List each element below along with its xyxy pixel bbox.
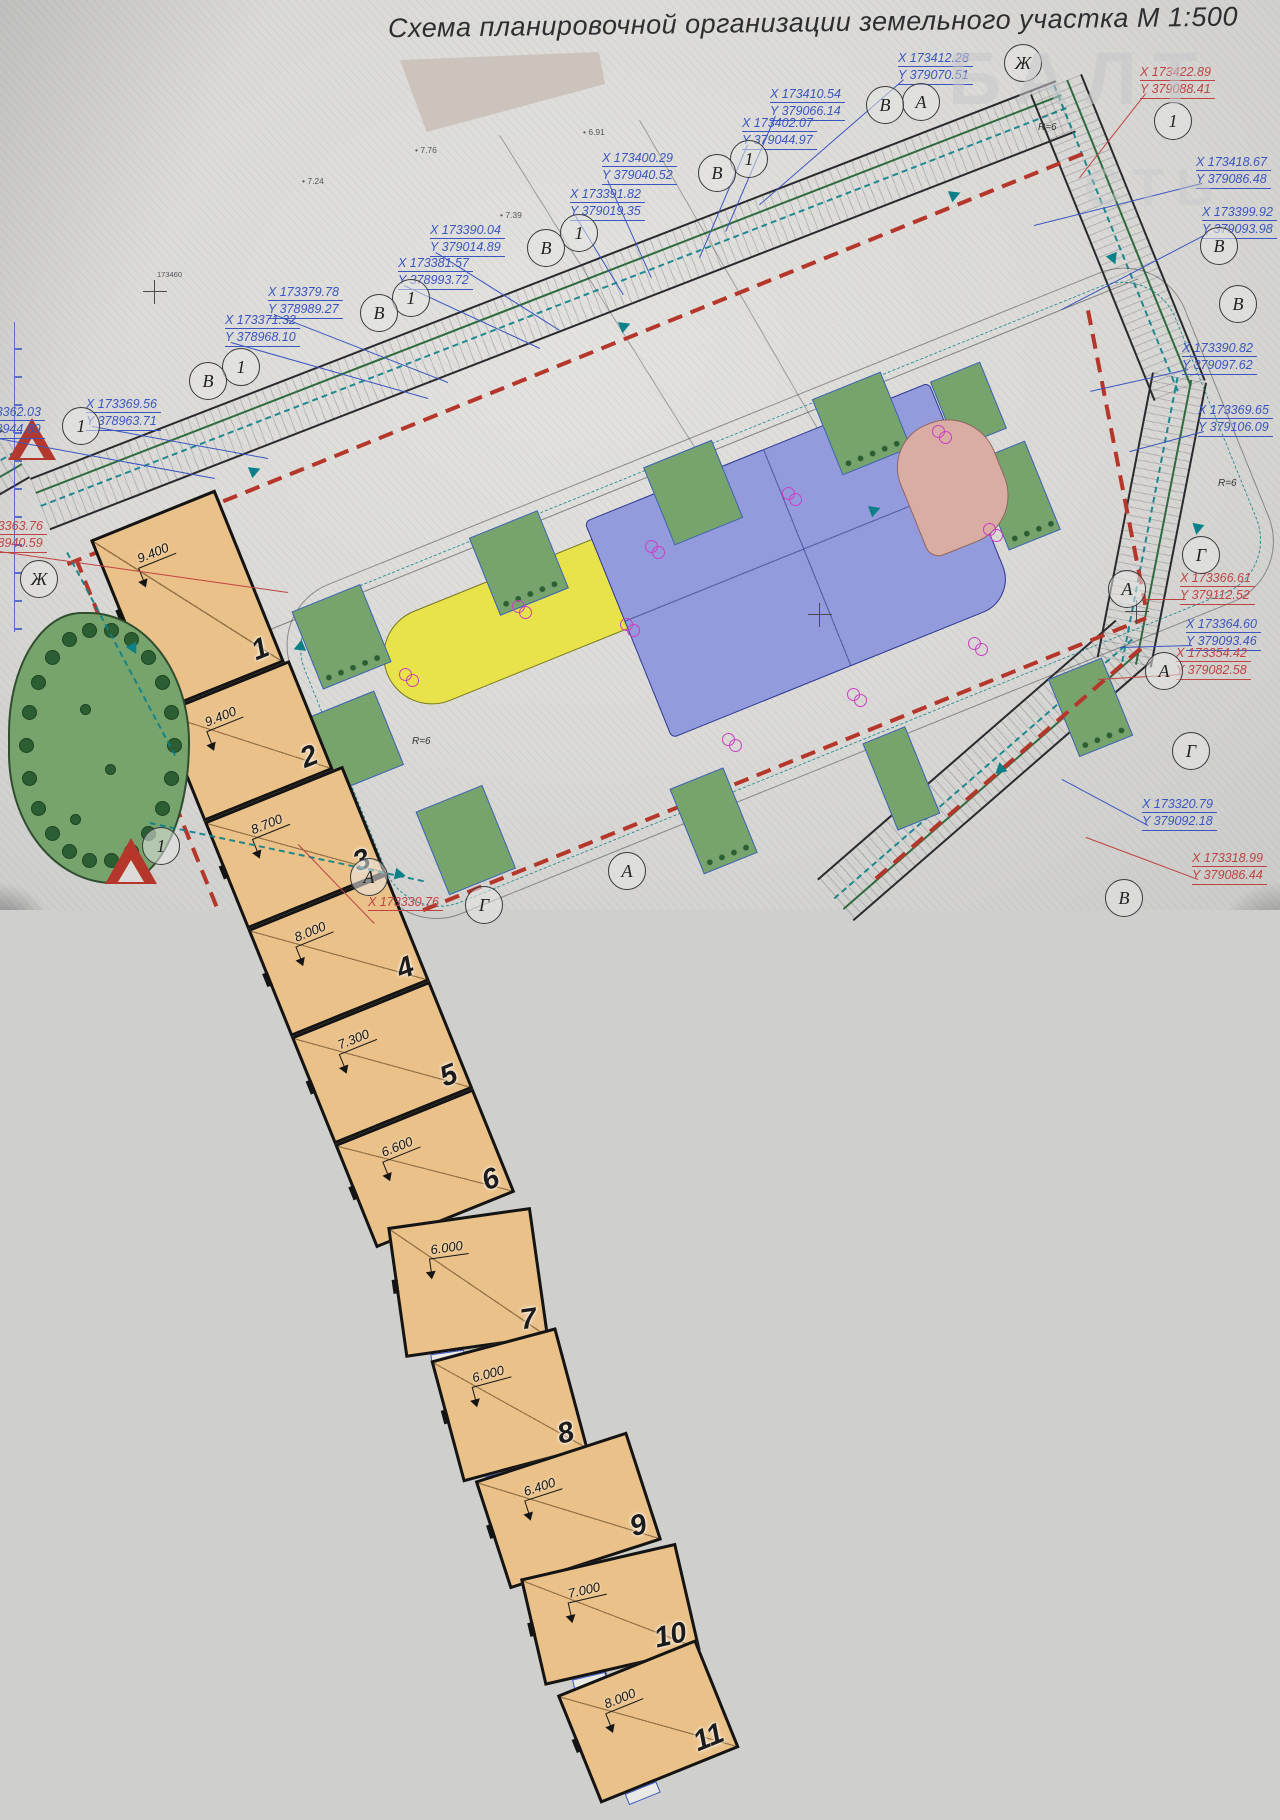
coord-x: X 173402.07 xyxy=(742,115,817,132)
entrance-stub xyxy=(527,1621,536,1636)
coord-y: Y 379112.52 xyxy=(1180,587,1255,604)
axis-circle-1: 1 xyxy=(62,407,100,445)
leader-line xyxy=(1062,779,1148,826)
coord-y: Y 378944.89 xyxy=(0,421,45,438)
warning-triangle-sign-inner xyxy=(20,438,44,458)
tree xyxy=(82,853,97,868)
elevation-mark: 8.000 xyxy=(600,1683,643,1714)
building-number: 1 xyxy=(247,631,274,668)
axis-circle-А: А xyxy=(608,852,646,890)
elevation-mark: 9.400 xyxy=(201,701,244,732)
axis-circle-Ж: Ж xyxy=(20,560,58,598)
axis-circle-В: В xyxy=(1200,227,1238,265)
building-number: 5 xyxy=(435,1058,462,1095)
coordinate-label: X 173400.29Y 379040.52 xyxy=(602,150,677,185)
tree xyxy=(45,826,60,841)
tree xyxy=(164,705,179,720)
tree xyxy=(19,738,34,753)
tree xyxy=(62,632,77,647)
coord-y: Y 379014.89 xyxy=(430,239,505,256)
coordinate-label: X 173354.42Y 379082.58 xyxy=(1176,645,1251,680)
axis-circle-1: 1 xyxy=(142,827,180,865)
coord-x: X 173364.60 xyxy=(1186,616,1261,633)
coordinate-label: X 173320.79Y 379092.18 xyxy=(1142,796,1217,831)
coord-x: X 173318.99 xyxy=(1192,850,1267,867)
tree xyxy=(164,771,179,786)
elevation-mark: 6.600 xyxy=(377,1132,420,1163)
coordinate-label: X 173363.76Y 378940.59 xyxy=(0,518,47,553)
coord-x: X 173330.76 xyxy=(368,894,443,911)
tree xyxy=(105,764,116,775)
coord-y: Y 379092.18 xyxy=(1142,813,1217,830)
coordinate-label: X 173390.82Y 379097.62 xyxy=(1182,340,1257,375)
axis-circle-1: 1 xyxy=(222,348,260,386)
tree xyxy=(22,771,37,786)
elevation-mark: 6.000 xyxy=(468,1361,511,1388)
coordinate-label: X 173369.65Y 379106.09 xyxy=(1198,402,1273,437)
axis-circle-1: 1 xyxy=(560,214,598,252)
leader-line xyxy=(1086,837,1198,880)
entrance-stub xyxy=(392,1280,400,1295)
radius-label: R=6 xyxy=(1218,478,1237,489)
elevation-mark: 6.000 xyxy=(427,1237,469,1259)
spot-elevation: 7.24 xyxy=(302,176,324,186)
spot-elevation: 6.91 xyxy=(583,127,605,137)
coord-y: Y 378940.59 xyxy=(0,535,47,552)
lawn xyxy=(862,726,940,830)
elevation-mark: 8.700 xyxy=(247,809,290,840)
coord-y: Y 379040.52 xyxy=(602,167,677,184)
entrance-stub xyxy=(262,972,273,987)
tree xyxy=(31,675,46,690)
axis-circle-В: В xyxy=(866,86,904,124)
grid-cross-label: 173460 xyxy=(157,270,182,279)
coord-x: X 173390.04 xyxy=(430,222,505,239)
existing-building-footprint xyxy=(400,52,605,132)
tree xyxy=(70,814,81,825)
tree xyxy=(22,705,37,720)
coordinate-label: X 173362.03Y 378944.89 xyxy=(0,404,45,439)
entrance-stub xyxy=(572,1738,583,1753)
coordinate-label: X 173390.04Y 379014.89 xyxy=(430,222,505,257)
axis-circle-А: А xyxy=(1145,652,1183,690)
coord-x: X 173369.56 xyxy=(86,396,161,413)
elevation-mark: 6.400 xyxy=(520,1473,563,1501)
coord-x: X 173320.79 xyxy=(1142,796,1217,813)
building-number: 4 xyxy=(392,950,419,987)
tree xyxy=(141,650,156,665)
building-number: 11 xyxy=(689,1717,729,1759)
axis-circle-А: А xyxy=(350,858,388,896)
entrance-stub xyxy=(441,1409,450,1424)
driveway-arrow xyxy=(248,461,268,478)
tree xyxy=(155,801,170,816)
tree xyxy=(62,844,77,859)
coord-x: X 173391.82 xyxy=(570,186,645,203)
elevation-mark: 9.400 xyxy=(133,538,176,569)
driveway-arrow xyxy=(618,316,638,333)
axis-circle-В: В xyxy=(1105,879,1143,917)
tree xyxy=(82,623,97,638)
coord-x: X 173410.54 xyxy=(770,86,845,103)
axis-circle-Г: Г xyxy=(1182,536,1220,574)
radius-label: R=6 xyxy=(1038,122,1057,133)
axis-circle-В: В xyxy=(360,294,398,332)
spot-elevation: 7.76 xyxy=(415,145,437,155)
coord-x: X 173390.82 xyxy=(1182,340,1257,357)
tree xyxy=(45,650,60,665)
coord-x: X 173362.03 xyxy=(0,404,45,421)
building-number: 9 xyxy=(626,1508,652,1544)
axis-circle-В: В xyxy=(1219,285,1257,323)
coord-x: X 173363.76 xyxy=(0,518,47,535)
entrance-stub xyxy=(306,1079,317,1094)
entrance-stub xyxy=(486,1524,496,1539)
entrance-stub xyxy=(219,864,230,879)
coord-x: X 173381.57 xyxy=(398,255,473,272)
coord-y: Y 378968.10 xyxy=(225,329,300,346)
coordinate-label: X 173330.76 xyxy=(368,894,443,911)
coordinate-label: X 173366.61Y 379112.52 xyxy=(1180,570,1255,605)
elevation-mark: 8.000 xyxy=(290,917,333,948)
spot-elevation: 7.39 xyxy=(500,210,522,220)
tree xyxy=(155,675,170,690)
radius-label: R=6 xyxy=(412,736,431,747)
grid-cross xyxy=(808,603,832,627)
axis-circle-В: В xyxy=(189,362,227,400)
warning-triangle-sign-inner xyxy=(118,860,144,882)
tree xyxy=(80,704,91,715)
coord-x: X 173366.61 xyxy=(1180,570,1255,587)
elevation-mark: 7.000 xyxy=(564,1578,606,1603)
coord-x: X 173400.29 xyxy=(602,150,677,167)
axis-circle-А: А xyxy=(1108,570,1146,608)
coord-y: Y 379097.62 xyxy=(1182,357,1257,374)
coord-x: X 173371.32 xyxy=(225,312,300,329)
axis-circle-В: В xyxy=(698,154,736,192)
site-plan-sheet: 9.40019.40028.70038.00047.30056.60066.00… xyxy=(0,0,1280,910)
axis-circle-А: А xyxy=(902,83,940,121)
building-number: 6 xyxy=(477,1162,504,1199)
coord-y: Y 379086.44 xyxy=(1192,867,1267,884)
building-number: 2 xyxy=(296,739,323,776)
entrance-stub xyxy=(348,1185,359,1200)
grid-cross: 173460 xyxy=(143,280,167,304)
coord-x: X 173379.78 xyxy=(268,284,343,301)
axis-circle-Г: Г xyxy=(465,886,503,924)
coord-x: X 173369.65 xyxy=(1198,402,1273,419)
coord-x: X 173354.42 xyxy=(1176,645,1251,662)
axis-circle-Г: Г xyxy=(1172,732,1210,770)
coordinate-label: X 173371.32Y 378968.10 xyxy=(225,312,300,347)
building-number: 8 xyxy=(554,1416,578,1452)
coord-y: Y 379082.58 xyxy=(1176,662,1251,679)
tree xyxy=(31,801,46,816)
watermark-line2: СТЬ xyxy=(1084,158,1225,218)
watermark-line1: БАЛТ xyxy=(948,36,1214,121)
axis-circle-В: В xyxy=(527,229,565,267)
coordinate-label: X 173318.99Y 379086.44 xyxy=(1192,850,1267,885)
coord-y: Y 379106.09 xyxy=(1198,419,1273,436)
elevation-mark: 7.300 xyxy=(334,1025,377,1056)
